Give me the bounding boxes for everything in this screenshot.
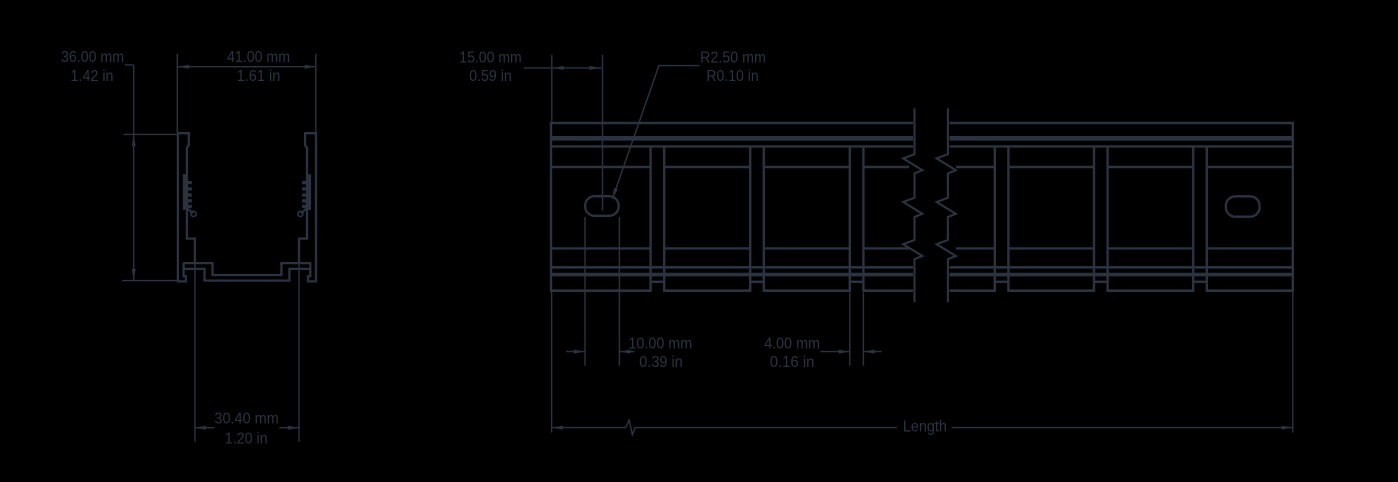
svg-text:0.59 in: 0.59 in bbox=[469, 68, 512, 85]
svg-text:30.40 mm: 30.40 mm bbox=[214, 411, 278, 428]
svg-text:15.00 mm: 15.00 mm bbox=[459, 49, 522, 66]
svg-text:4.00 mm: 4.00 mm bbox=[764, 336, 820, 353]
svg-text:41.00 mm: 41.00 mm bbox=[227, 49, 290, 66]
svg-text:1.20 in: 1.20 in bbox=[225, 430, 268, 447]
svg-text:0.16 in: 0.16 in bbox=[770, 354, 815, 371]
svg-text:10.00 mm: 10.00 mm bbox=[628, 335, 692, 352]
svg-text:1.42 in: 1.42 in bbox=[71, 68, 114, 85]
svg-text:0.39 in: 0.39 in bbox=[639, 354, 683, 371]
svg-text:R0.10 in: R0.10 in bbox=[706, 68, 758, 85]
svg-text:36.00 mm: 36.00 mm bbox=[61, 49, 124, 66]
svg-text:R2.50 mm: R2.50 mm bbox=[700, 49, 766, 66]
svg-text:Length: Length bbox=[903, 419, 947, 436]
svg-text:1.61 in: 1.61 in bbox=[237, 68, 281, 85]
